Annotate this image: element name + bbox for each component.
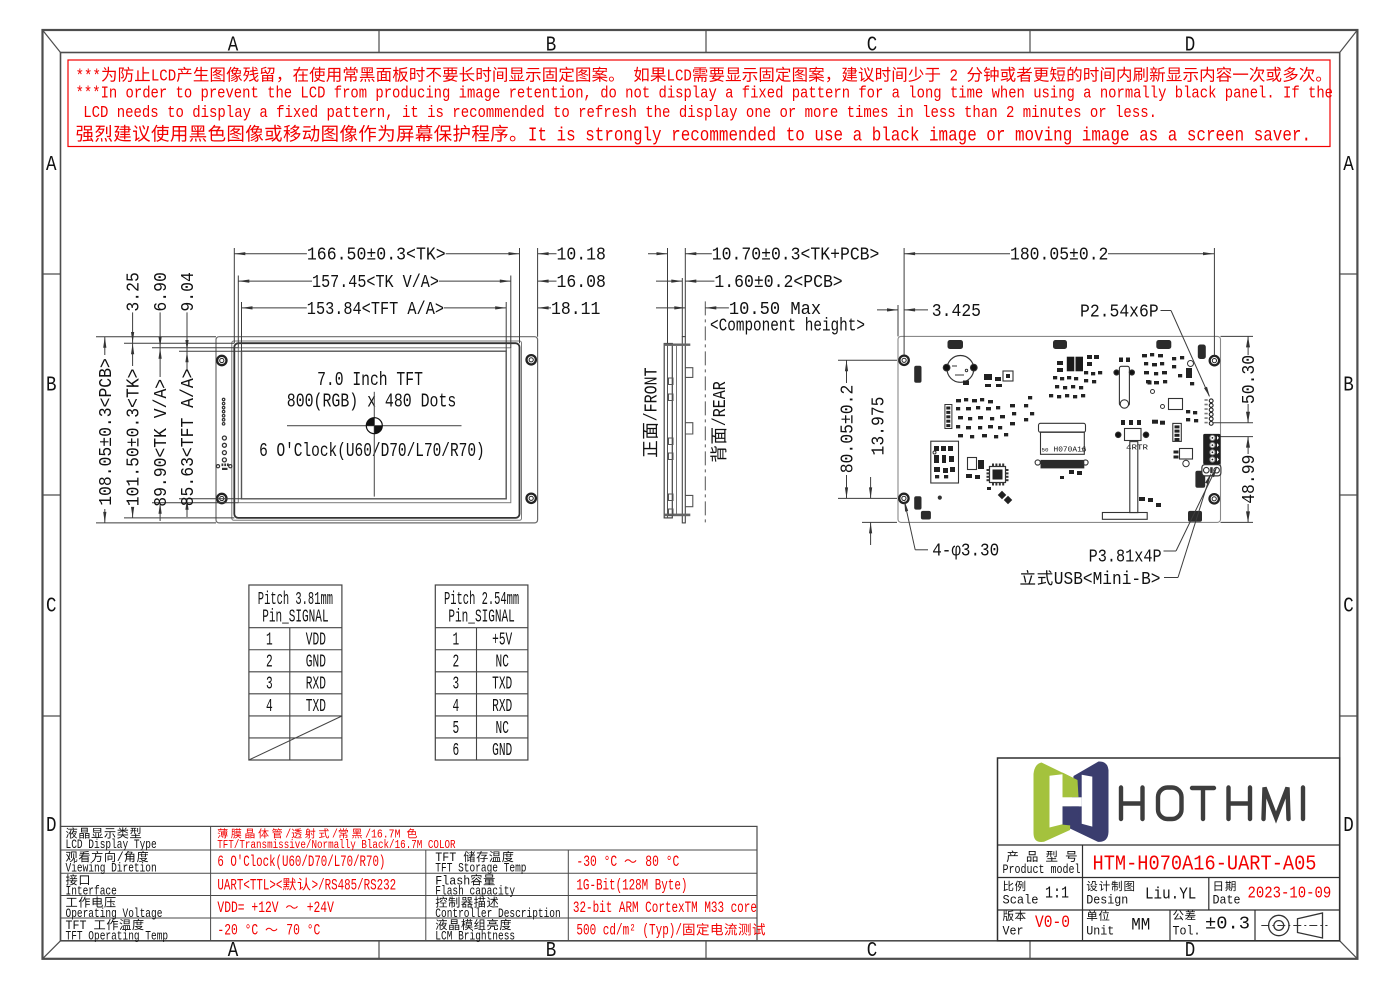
svg-text:C: C (867, 940, 878, 963)
svg-text:80.05±0.2: 80.05±0.2 (838, 385, 858, 474)
svg-text:+24V: +24V (300, 899, 335, 917)
svg-text:108.05±0.3<PCB>: 108.05±0.3<PCB> (97, 358, 117, 506)
svg-text:4: 4 (453, 697, 460, 717)
svg-text:B: B (46, 375, 57, 398)
svg-text:TFT Operating Temp: TFT Operating Temp (66, 929, 169, 944)
svg-text:48.99: 48.99 (1240, 455, 1260, 504)
svg-text:166.50±0.3<TK>: 166.50±0.3<TK> (307, 246, 446, 266)
svg-text:Design: Design (1086, 892, 1128, 907)
svg-text:-20 °C: -20 °C (217, 921, 265, 939)
svg-text:A: A (228, 34, 239, 57)
svg-text:6: 6 (453, 741, 460, 761)
svg-text:157.45<TK V/A>: 157.45<TK V/A> (312, 273, 439, 293)
svg-text:V0-0: V0-0 (1035, 913, 1070, 933)
svg-text:***In order to prevent the LCD: ***In order to prevent the LCD from prod… (76, 84, 1333, 103)
svg-text:70 °C: 70 °C (280, 921, 321, 939)
svg-text:10.18: 10.18 (557, 246, 606, 266)
svg-text:153.84<TFT A/A>: 153.84<TFT A/A> (307, 300, 444, 320)
svg-text:32-bit ARM CortexTM M33 core: 32-bit ARM CortexTM M33 core (573, 899, 757, 917)
svg-text:9.04: 9.04 (179, 272, 199, 311)
svg-text:Liu.YL: Liu.YL (1145, 886, 1196, 905)
svg-text:A: A (228, 940, 239, 963)
svg-text:B: B (546, 34, 557, 57)
svg-text:P3.81x4P: P3.81x4P (1089, 547, 1162, 567)
svg-text:Ver: Ver (1003, 923, 1024, 938)
svg-text:800(RGB) x 480 Dots: 800(RGB) x 480 Dots (287, 390, 457, 412)
svg-text:VDD: VDD (306, 631, 326, 651)
svg-text:10.70±0.3<TK+PCB>: 10.70±0.3<TK+PCB> (712, 246, 880, 266)
svg-text:Flash capacity: Flash capacity (435, 884, 515, 899)
svg-text:LCD needs to display a fixed p: LCD needs to display a fixed pattern, it… (83, 104, 1157, 123)
svg-text:<Component height>: <Component height> (710, 317, 865, 337)
svg-text:1G-Bit(128M Byte): 1G-Bit(128M Byte) (576, 876, 687, 894)
svg-text:4: 4 (266, 697, 273, 717)
svg-text:Tol.: Tol. (1173, 923, 1201, 938)
svg-text:It is strongly recommended to: It is strongly recommended to use a blac… (528, 124, 1311, 146)
svg-text:D: D (1343, 815, 1354, 838)
svg-text:85.63<TFT A/A>: 85.63<TFT A/A> (179, 369, 199, 507)
svg-text:1:1: 1:1 (1045, 884, 1069, 903)
svg-text:RXD: RXD (306, 675, 326, 695)
svg-text:1: 1 (266, 631, 273, 651)
svg-text:LCM Brightness: LCM Brightness (435, 929, 515, 944)
svg-text:NC: NC (496, 719, 510, 739)
svg-text:C: C (1343, 595, 1354, 618)
svg-text:NC: NC (496, 653, 510, 673)
svg-text:13.975: 13.975 (869, 397, 889, 456)
svg-text:Viewing Diretion: Viewing Diretion (66, 861, 157, 876)
svg-text:101.50±0.3<TK>: 101.50±0.3<TK> (125, 369, 145, 507)
svg-text:Controller Description: Controller Description (435, 906, 560, 921)
svg-text:6 O'Clock(U60/D70/L70/R70): 6 O'Clock(U60/D70/L70/R70) (259, 440, 485, 462)
svg-text:A: A (1343, 154, 1354, 177)
svg-text:B: B (546, 940, 557, 963)
svg-text:+5V: +5V (492, 631, 512, 651)
svg-text:P2.54x6P: P2.54x6P (1080, 303, 1159, 323)
svg-text:Product model: Product model (1003, 862, 1081, 877)
svg-text:TFT/Transmissive/Normally Blac: TFT/Transmissive/Normally Black/16.7M CO… (217, 839, 455, 852)
svg-text:50: 50 (1042, 448, 1049, 454)
svg-text:C: C (46, 595, 57, 618)
svg-text:D: D (46, 815, 57, 838)
svg-text:Date: Date (1213, 892, 1241, 907)
svg-text:89.90<TK V/A>: 89.90<TK V/A> (152, 379, 172, 507)
svg-text:D: D (1185, 34, 1196, 57)
svg-text:180.05±0.2: 180.05±0.2 (1010, 246, 1108, 266)
svg-text:7.0 Inch TFT: 7.0 Inch TFT (317, 369, 423, 391)
svg-text:/FRONT: /FRONT (643, 367, 663, 421)
svg-text:C: C (867, 34, 878, 57)
svg-text:RXD: RXD (492, 697, 512, 717)
svg-text:16.08: 16.08 (557, 273, 606, 293)
svg-text:TXD: TXD (492, 675, 512, 695)
svg-text:UART<TTL><: UART<TTL>< (217, 876, 282, 894)
svg-text:GND: GND (306, 653, 326, 673)
svg-text:3: 3 (266, 675, 273, 695)
svg-text:MM: MM (1131, 916, 1150, 936)
svg-text:HTM-H070A16-UART-A05: HTM-H070A16-UART-A05 (1093, 854, 1317, 877)
svg-text:2: 2 (453, 653, 460, 673)
svg-text:2: 2 (266, 653, 273, 673)
svg-text:6 O'Clock(U60/D70/L70/R70): 6 O'Clock(U60/D70/L70/R70) (217, 853, 385, 871)
svg-text:18.11: 18.11 (551, 300, 600, 320)
svg-text:5: 5 (453, 719, 460, 739)
svg-text:Interface: Interface (66, 884, 117, 899)
svg-text:6.90: 6.90 (152, 272, 172, 311)
svg-text:3.25: 3.25 (125, 272, 145, 311)
svg-text:/REAR: /REAR (711, 381, 731, 426)
svg-text:VDD= +12V: VDD= +12V (217, 899, 285, 917)
svg-text:500 cd/m² (Typ)/: 500 cd/m² (Typ)/ (576, 921, 682, 939)
svg-text:Pin_SIGNAL: Pin_SIGNAL (262, 608, 328, 628)
svg-text:D: D (1185, 940, 1196, 963)
svg-text:80 °C: 80 °C (639, 853, 680, 871)
svg-text:USB<Mini-B>: USB<Mini-B> (1054, 570, 1161, 590)
svg-text:TXD: TXD (306, 697, 326, 717)
svg-text:1.60±0.2<PCB>: 1.60±0.2<PCB> (714, 273, 842, 293)
svg-text:Scale: Scale (1003, 893, 1039, 908)
svg-text:3: 3 (453, 675, 460, 695)
svg-text:2023-10-09: 2023-10-09 (1248, 884, 1332, 903)
svg-text:1: 1 (1081, 448, 1084, 454)
svg-text:±0.3: ±0.3 (1205, 915, 1250, 935)
svg-text:LCD Display Type: LCD Display Type (66, 837, 157, 852)
svg-text:50.30: 50.30 (1240, 355, 1260, 404)
svg-text:4-φ3.30: 4-φ3.30 (932, 541, 999, 561)
svg-text:B: B (1343, 375, 1354, 398)
svg-text:GND: GND (492, 741, 512, 761)
svg-text:Unit: Unit (1086, 923, 1114, 938)
svg-text:>/RS485/RS232: >/RS485/RS232 (312, 876, 397, 894)
svg-text:3.425: 3.425 (932, 302, 981, 322)
svg-text:-30 °C: -30 °C (576, 853, 624, 871)
svg-text:Pin_SIGNAL: Pin_SIGNAL (448, 608, 514, 628)
svg-text:1: 1 (453, 631, 460, 651)
svg-text:A: A (46, 154, 57, 177)
